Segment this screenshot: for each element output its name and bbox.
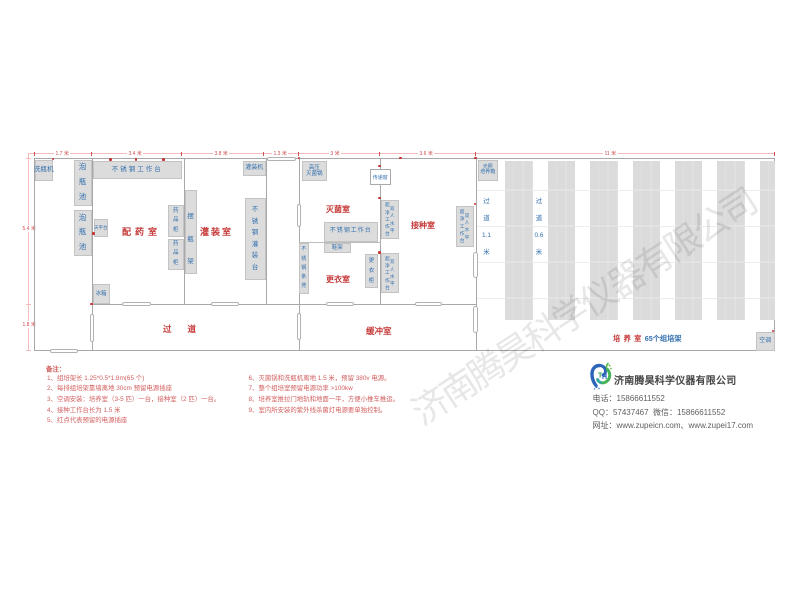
svg-text:H: H: [602, 374, 607, 381]
